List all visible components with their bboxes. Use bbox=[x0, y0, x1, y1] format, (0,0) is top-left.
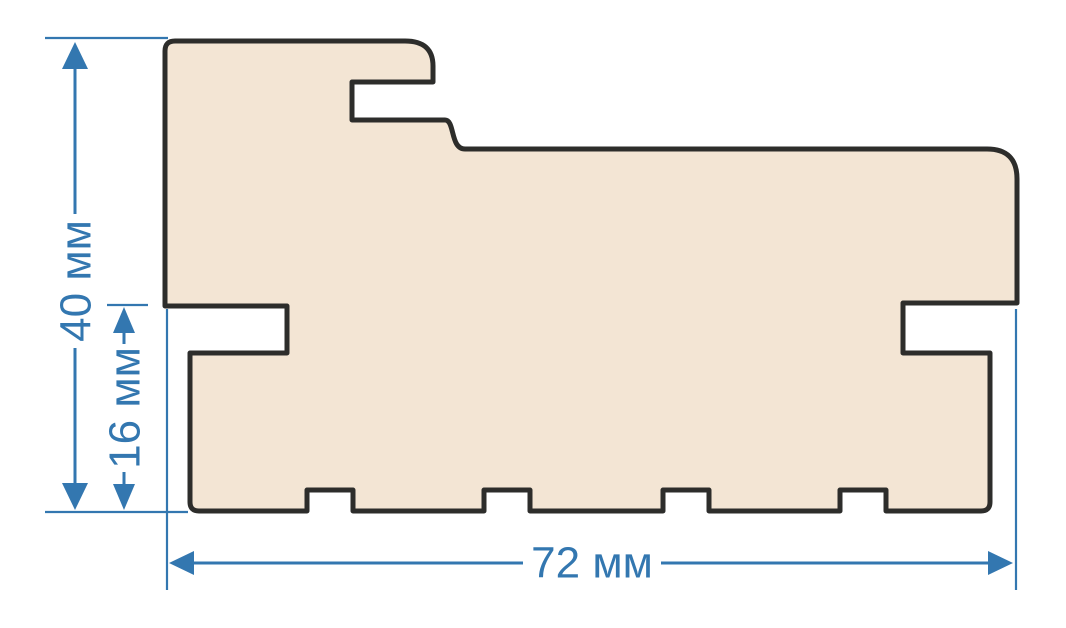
dimension-label-40mm: 40 мм bbox=[52, 220, 101, 342]
technical-drawing: 40 мм 16 мм 72 мм bbox=[0, 0, 1066, 628]
dimension-label-16mm: 16 мм bbox=[101, 347, 150, 469]
drawing-canvas: 40 мм 16 мм 72 мм bbox=[0, 0, 1066, 628]
dimension-72mm: 72 мм bbox=[169, 539, 1013, 588]
arrow-up-icon bbox=[62, 42, 88, 69]
arrow-down-icon bbox=[62, 483, 88, 510]
arrow-right-icon bbox=[988, 551, 1013, 575]
dimension-16mm: 16 мм bbox=[101, 307, 150, 510]
door-frame-profile-shape bbox=[165, 41, 1017, 511]
arrow-left-icon bbox=[169, 551, 194, 575]
dimension-label-72mm: 72 мм bbox=[531, 539, 653, 588]
dimension-40mm: 40 мм bbox=[52, 42, 101, 510]
arrow-down-icon bbox=[113, 484, 135, 510]
arrow-up-icon bbox=[113, 307, 135, 333]
